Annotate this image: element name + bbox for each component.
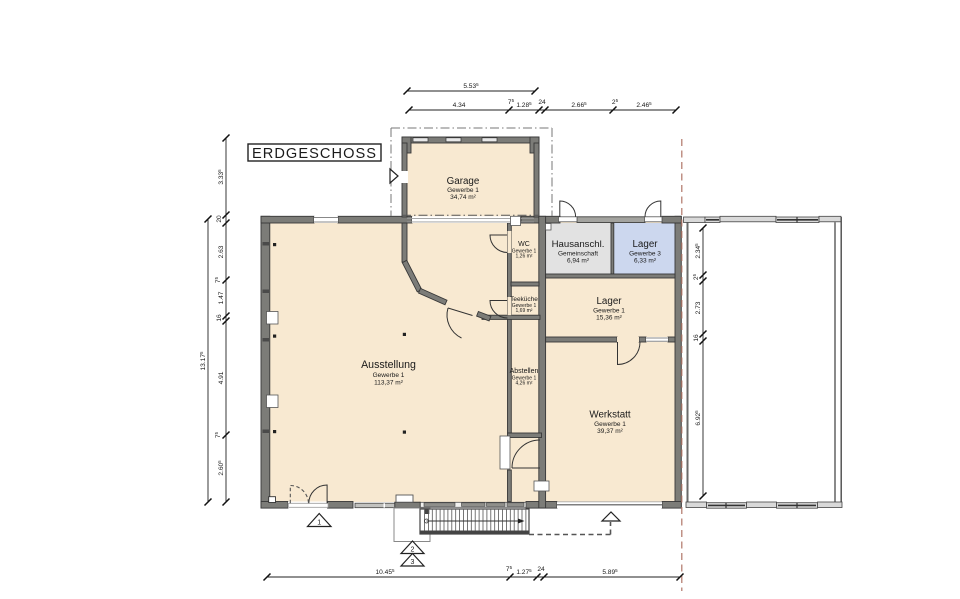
svg-text:2.665: 2.665	[571, 101, 587, 109]
svg-text:Gemeinschaft: Gemeinschaft	[558, 251, 598, 258]
svg-text:15,36 m²: 15,36 m²	[596, 315, 622, 322]
svg-text:Gewerbe 1: Gewerbe 1	[593, 308, 625, 315]
svg-text:1.47: 1.47	[218, 291, 225, 304]
svg-text:ERDGESCHOSS: ERDGESCHOSS	[252, 146, 377, 162]
svg-text:4.34: 4.34	[453, 102, 466, 109]
svg-text:25: 25	[692, 273, 700, 280]
svg-text:25: 25	[612, 98, 619, 106]
svg-text:34,74 m²: 34,74 m²	[450, 194, 476, 201]
svg-text:5.535: 5.535	[463, 82, 479, 90]
svg-text:24: 24	[538, 99, 546, 106]
svg-text:1,26 m²: 1,26 m²	[516, 254, 533, 260]
svg-text:Gewerbe 3: Gewerbe 3	[629, 251, 661, 258]
svg-text:16: 16	[216, 314, 223, 322]
svg-text:1.275: 1.275	[516, 568, 532, 576]
svg-text:1.285: 1.285	[516, 101, 532, 109]
svg-text:10.455: 10.455	[375, 568, 395, 576]
svg-text:Ausstellung: Ausstellung	[361, 359, 416, 371]
svg-text:20: 20	[216, 215, 223, 223]
svg-text:Gewerbe 1: Gewerbe 1	[447, 187, 479, 194]
svg-text:2.465: 2.465	[636, 101, 652, 109]
svg-text:Teeküche: Teeküche	[510, 296, 538, 303]
svg-text:2.63: 2.63	[218, 245, 225, 258]
svg-text:6.925: 6.925	[694, 410, 702, 426]
svg-text:Lager: Lager	[632, 239, 658, 250]
svg-text:Werkstatt: Werkstatt	[589, 410, 630, 421]
svg-text:13.175: 13.175	[199, 351, 207, 371]
svg-text:39,37 m²: 39,37 m²	[597, 428, 623, 435]
svg-text:6,33 m²: 6,33 m²	[634, 258, 657, 265]
svg-text:Hausanschl.: Hausanschl.	[552, 239, 605, 250]
svg-text:75: 75	[214, 276, 222, 283]
svg-text:3: 3	[411, 559, 415, 566]
svg-text:1: 1	[317, 520, 321, 527]
svg-text:75: 75	[506, 565, 513, 573]
svg-text:2.73: 2.73	[695, 301, 702, 314]
svg-text:2: 2	[411, 547, 415, 554]
svg-text:24: 24	[537, 566, 545, 573]
svg-text:1,69 m²: 1,69 m²	[516, 308, 533, 314]
svg-text:75: 75	[214, 431, 222, 438]
svg-text:4.91: 4.91	[218, 371, 225, 384]
svg-text:3.335: 3.335	[217, 169, 225, 185]
svg-text:Abstellen: Abstellen	[510, 368, 539, 375]
svg-text:Garage: Garage	[447, 176, 480, 187]
svg-text:2.605: 2.605	[217, 460, 225, 476]
svg-text:Gewerbe 1: Gewerbe 1	[373, 372, 405, 379]
svg-text:6,94 m²: 6,94 m²	[567, 258, 590, 265]
svg-text:75: 75	[508, 98, 515, 106]
svg-text:WC: WC	[518, 241, 530, 248]
svg-text:5.895: 5.895	[602, 568, 618, 576]
svg-text:113,37 m²: 113,37 m²	[374, 380, 404, 387]
svg-text:Gewerbe 1: Gewerbe 1	[594, 421, 626, 428]
svg-text:Lager: Lager	[596, 296, 622, 307]
svg-text:2.345: 2.345	[694, 243, 702, 259]
svg-text:16: 16	[693, 334, 700, 342]
svg-text:4,26 m²: 4,26 m²	[516, 381, 533, 387]
